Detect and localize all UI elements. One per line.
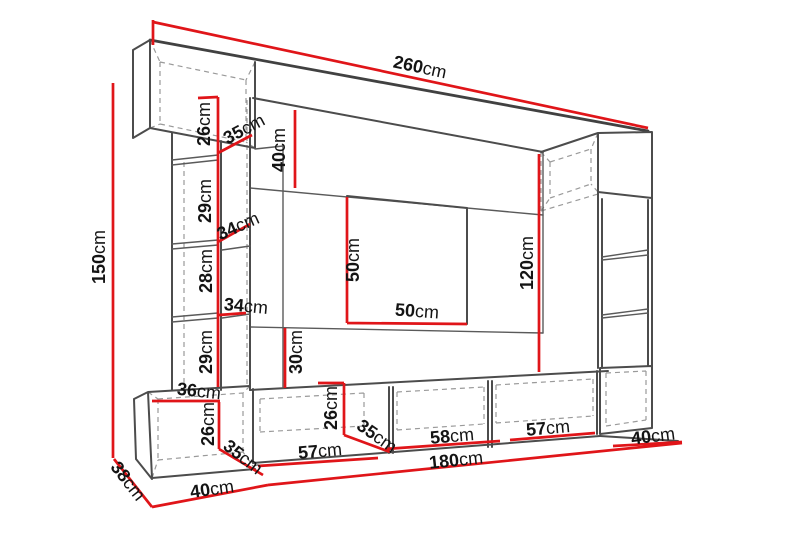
dim-value: 29 (196, 354, 216, 374)
dim-unit: cm (269, 128, 289, 152)
dim-unit: cm (209, 476, 236, 499)
dim-value: 36 (176, 379, 198, 401)
dim-label-lower-gap-height: 30cm (286, 330, 306, 374)
dim-unit: cm (449, 424, 475, 446)
right-column-sides (598, 141, 652, 368)
dim-unit: cm (243, 296, 269, 318)
dim-value: 120 (517, 260, 537, 290)
dim-value: 29 (195, 203, 215, 223)
dim-unit: cm (458, 447, 484, 469)
dim-label-base-compartment-2: 58cm (429, 424, 475, 448)
dim-value: 58 (429, 426, 451, 448)
dim-label-base-total-width: 180cm (428, 447, 484, 473)
dim-label-left-section-1-height: 29cm (195, 179, 215, 223)
top-panel-bottom-edge (253, 98, 543, 152)
dim-label-top-cabinet-height: 26cm (194, 102, 214, 146)
dim-unit: cm (198, 402, 218, 426)
dim-unit: cm (317, 439, 343, 461)
dim-unit: cm (196, 381, 222, 403)
dim-label-tv-recess-width: 50cm (394, 299, 439, 322)
dim-value: 40 (269, 152, 289, 172)
dim-label-tv-recess-height: 50cm (343, 238, 363, 282)
dim-value: 26 (198, 426, 218, 446)
dim-unit: cm (194, 102, 214, 126)
dim-label-base-mid-height: 26cm (321, 386, 341, 430)
dim-label-left-section-2-height: 28cm (196, 249, 216, 293)
dim-unit: cm (196, 249, 216, 273)
base-right-cabinet-hidden-edges (606, 371, 646, 426)
dim-value: 50 (394, 299, 415, 320)
dim-value: 40 (630, 426, 652, 448)
wall-unit-drawing: 260cm150cm26cm35cm40cm29cm34cm28cm34cm50… (0, 0, 800, 533)
dim-unit: cm (343, 238, 363, 262)
dim-value: 26 (194, 126, 214, 146)
dim-unit: cm (89, 230, 109, 254)
dim-label-total-height: 150cm (89, 230, 109, 284)
furniture-dimension-diagram: 260cm150cm26cm35cm40cm29cm34cm28cm34cm50… (0, 0, 800, 533)
base-compartment-1-hidden-edges (260, 393, 364, 432)
dim-value: 34 (223, 294, 245, 316)
dim-unit: cm (414, 301, 439, 323)
dim-label-base-left-outer-width: 40cm (189, 476, 235, 502)
dim-value: 150 (89, 254, 109, 284)
dim-value: 28 (196, 273, 216, 293)
back-panel-left-edge (255, 146, 283, 388)
right-column-shelves (602, 250, 648, 318)
hidden-edges (148, 40, 646, 478)
dim-label-base-compartment-1: 57cm (297, 439, 343, 463)
floating-cabinet-hidden-edges (541, 133, 598, 211)
dim-value: 26 (321, 410, 341, 430)
dim-line-total-width (153, 20, 648, 128)
top-right-cabinet (541, 132, 652, 198)
dim-unit: cm (421, 58, 449, 83)
dim-unit: cm (196, 330, 216, 354)
dim-label-top-panel-height: 40cm (269, 128, 289, 172)
dim-unit: cm (286, 330, 306, 354)
dim-label-top-cabinet-depth: 35cm (220, 110, 268, 148)
dim-label-base-left-height: 26cm (198, 402, 218, 446)
dim-unit: cm (545, 416, 571, 438)
base-compartment-3-hidden-edges (496, 379, 593, 423)
dim-value: 57 (297, 441, 319, 463)
dim-value: 57 (525, 418, 547, 440)
dim-unit: cm (650, 423, 676, 446)
dim-label-total-width: 260cm (391, 52, 448, 83)
dim-label-left-section-3-height: 29cm (196, 330, 216, 374)
dim-label-base-left-top-width: 36cm (176, 379, 222, 403)
dim-label-right-panel-height: 120cm (517, 236, 537, 290)
dim-label-base-compartment-3: 57cm (525, 416, 571, 440)
dim-value: 180 (428, 450, 460, 473)
dim-unit: cm (195, 179, 215, 203)
dim-value: 40 (189, 479, 212, 502)
dim-unit: cm (517, 236, 537, 260)
dim-value: 30 (286, 354, 306, 374)
dim-value: 50 (343, 262, 363, 282)
dim-unit: cm (321, 386, 341, 410)
dim-label-left-shelf-2-width: 34cm (223, 294, 269, 318)
